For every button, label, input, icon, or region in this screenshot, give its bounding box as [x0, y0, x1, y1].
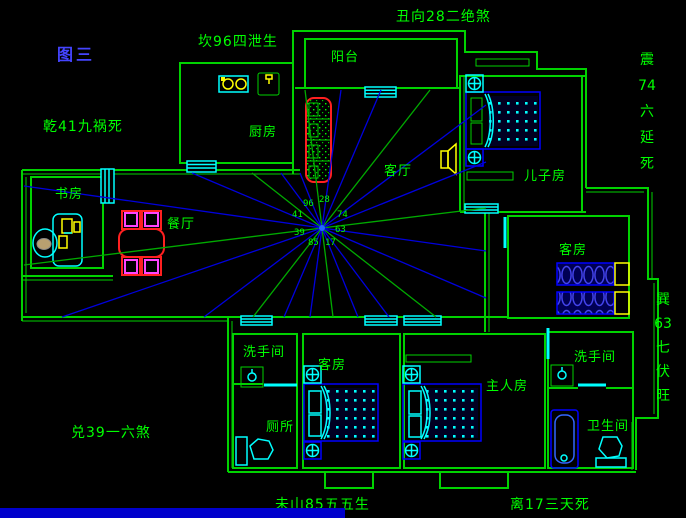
room-label-bath: 卫生间: [587, 415, 629, 434]
stove-icon: [219, 76, 248, 92]
room-label-dining: 餐厅: [167, 213, 195, 232]
figure-title: 图三: [57, 41, 95, 65]
flying-star-number: 41: [292, 210, 303, 220]
speaker-icon: [441, 144, 456, 174]
fengshui-label-zhen: 震 74 六 延 死: [632, 47, 662, 177]
room-label-son: 儿子房: [524, 165, 566, 184]
twin-beds: [557, 263, 629, 314]
fengshui-label-dui: 兑39一六煞: [71, 422, 151, 442]
fengshui-label-li: 离17三天死: [510, 494, 590, 514]
flying-star-number: 63: [335, 225, 346, 235]
bed-master: [403, 384, 481, 441]
bottom-blue-bar: [0, 508, 345, 518]
flying-star-number: 39: [294, 228, 305, 238]
window-south-1: [241, 316, 272, 325]
room-label-balcony: 阳台: [331, 46, 359, 65]
compass-ray: [62, 228, 322, 317]
floorplan-canvas: 图三 坎96四泄生 丑向28二绝煞 乾41九祸死 震 74 六 延 死 巽 63…: [0, 0, 686, 518]
fengshui-label-chou: 丑向28二绝煞: [396, 6, 491, 26]
room-label-wash2: 洗手间: [574, 346, 616, 365]
flying-star-number: 96: [303, 199, 314, 209]
compass-center-dot: [319, 225, 325, 231]
bed-guest: [304, 384, 378, 441]
flying-star-number: 28: [319, 195, 330, 205]
flying-star-number: 74: [337, 210, 348, 220]
window-kitchen: [187, 161, 216, 172]
room-label-wash1: 洗手间: [243, 341, 285, 360]
room-label-guest-bottom: 客房: [318, 354, 346, 373]
sink-icon: [258, 73, 279, 95]
plant-box: [306, 98, 331, 182]
dining-chair: [122, 211, 161, 275]
room-label-living: 客厅: [384, 160, 412, 179]
flying-star-number: 85: [308, 238, 319, 248]
fengshui-label-xun: 巽 63 七 伏 旺: [648, 288, 678, 408]
windows-layer: [101, 87, 498, 325]
bed-son: [466, 92, 540, 149]
room-label-master: 主人房: [486, 375, 528, 394]
bathtub-icon: [551, 410, 578, 468]
window-south-2: [365, 316, 397, 325]
fengshui-label-qian: 乾41九祸死: [43, 116, 123, 136]
room-label-guest-right: 客房: [559, 239, 587, 258]
flying-star-number: 17: [325, 238, 336, 248]
room-label-study: 书房: [55, 183, 83, 202]
fengshui-label-kan: 坎96四泄生: [198, 31, 278, 51]
room-label-toilet: 厕所: [266, 416, 294, 435]
room-label-kitchen: 厨房: [249, 121, 277, 140]
